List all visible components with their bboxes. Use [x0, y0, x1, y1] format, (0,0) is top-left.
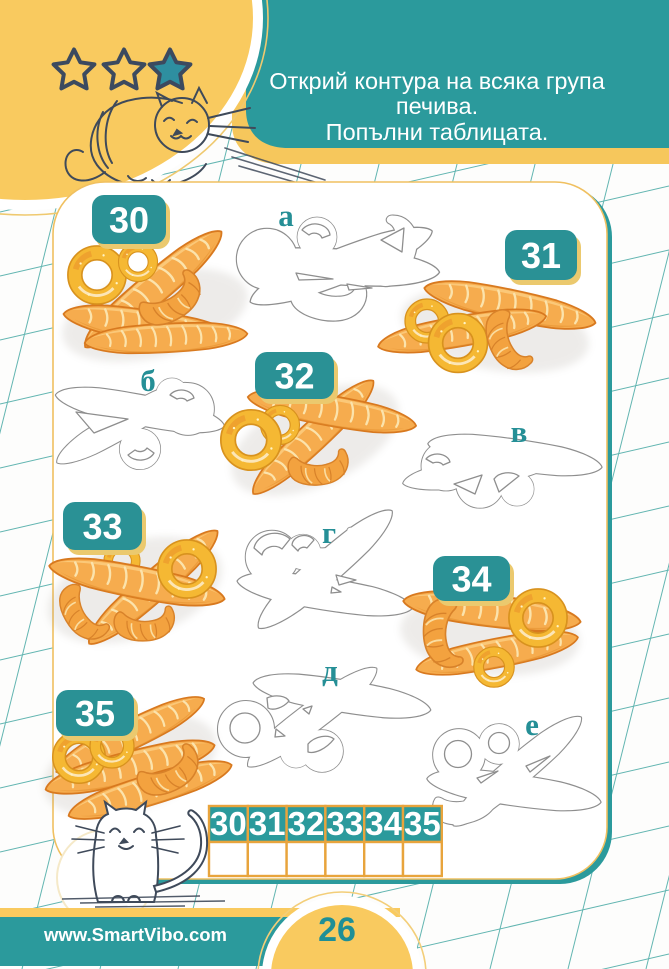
svg-text:е: е [525, 707, 539, 742]
svg-text:32: 32 [288, 805, 325, 842]
svg-text:34: 34 [365, 805, 402, 842]
svg-text:д: д [322, 653, 338, 688]
svg-text:печива.: печива. [396, 93, 478, 119]
svg-text:26: 26 [318, 911, 356, 949]
svg-text:33: 33 [326, 805, 363, 842]
svg-text:34: 34 [451, 558, 491, 599]
svg-text:в: в [511, 414, 528, 449]
svg-text:30: 30 [109, 199, 149, 240]
svg-text:31: 31 [521, 235, 561, 276]
svg-text:31: 31 [249, 805, 286, 842]
svg-text:30: 30 [210, 805, 247, 842]
svg-text:г: г [322, 515, 336, 550]
svg-text:www.SmartVibo.com: www.SmartVibo.com [43, 924, 227, 945]
svg-text:Попълни таблицата.: Попълни таблицата. [326, 119, 549, 145]
svg-text:35: 35 [75, 693, 115, 734]
svg-text:33: 33 [82, 506, 122, 547]
svg-text:Открий контура на всяка група: Открий контура на всяка група [269, 68, 605, 94]
svg-text:35: 35 [404, 805, 441, 842]
svg-text:32: 32 [274, 355, 314, 396]
svg-text:б: б [140, 363, 156, 398]
svg-text:а: а [278, 198, 294, 233]
